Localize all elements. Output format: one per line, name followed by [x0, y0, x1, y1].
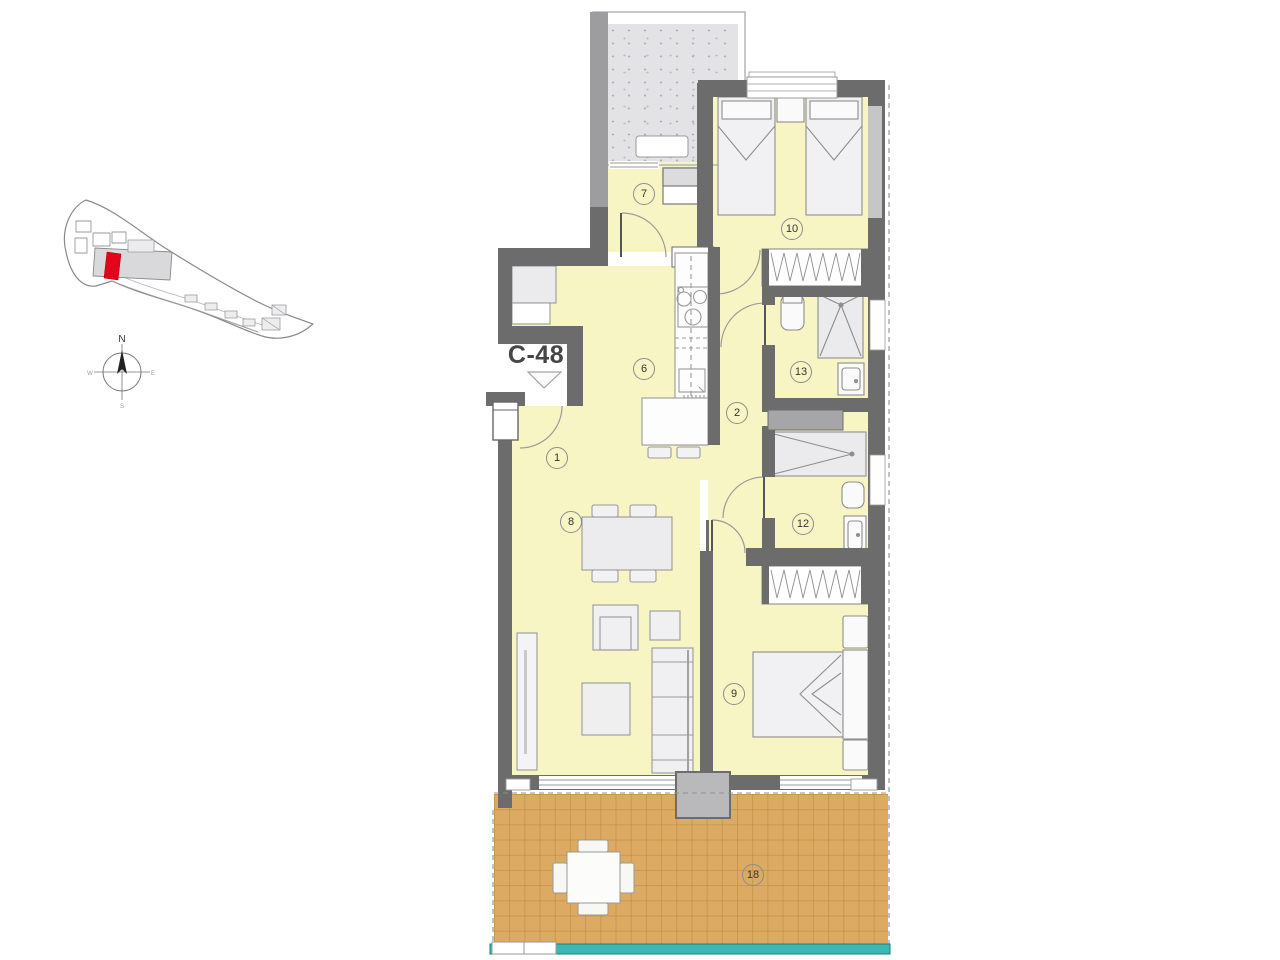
room-badge-laundry: 7 — [633, 183, 655, 205]
bedroom-10-window — [747, 77, 837, 98]
room-badge-bedroom-2: 10 — [781, 218, 803, 240]
room-badge-terrace: 18 — [742, 864, 764, 886]
toilet — [842, 482, 864, 508]
coffee-table — [582, 683, 630, 735]
compass-north-label: N — [118, 334, 125, 345]
room-badge-hallway: 2 — [726, 402, 748, 424]
room-badge-entrance: 1 — [546, 447, 568, 469]
patio-bench — [636, 136, 688, 157]
fridge — [512, 266, 556, 303]
dining-chair — [630, 570, 656, 582]
headboard — [843, 650, 868, 739]
compass-rose: N E S W — [87, 334, 155, 410]
room-badge-living: 8 — [560, 511, 582, 533]
dining-chair — [630, 505, 656, 517]
utility-box — [493, 402, 518, 440]
terrace-chair — [620, 863, 634, 893]
compass-east-label: E — [151, 371, 155, 377]
dining-chair — [592, 570, 618, 582]
terrace-pillar — [676, 772, 730, 818]
dining-chair — [592, 505, 618, 517]
floorplan-page: N E S W — [0, 0, 1280, 960]
nightstand — [843, 616, 868, 648]
site-map — [64, 200, 313, 338]
terrace-table — [567, 852, 620, 903]
unit-location-marker — [104, 252, 121, 280]
larder-unit — [512, 303, 550, 324]
stool — [677, 447, 700, 458]
terrace-chair — [578, 903, 608, 915]
room-badge-bathroom-2: 12 — [792, 513, 814, 535]
patio-side-wall — [590, 12, 608, 207]
bedroom-9-sliding-door — [780, 776, 862, 789]
double-bed — [753, 652, 843, 737]
terrace-chair — [578, 840, 608, 852]
unit-label: C-48 — [504, 341, 568, 370]
nightstand — [843, 740, 868, 770]
bedroom-10-side-window — [868, 106, 882, 218]
nightstand — [777, 97, 804, 122]
terrace-chair — [553, 863, 567, 893]
compass-south-label: S — [120, 404, 124, 410]
kitchen-peninsula — [642, 398, 708, 445]
dining-table — [582, 517, 672, 570]
entrance-arrow-icon — [528, 372, 561, 388]
floorplan-drawing: N E S W — [0, 0, 1280, 960]
side-table — [650, 611, 680, 640]
stool — [648, 447, 671, 458]
room-badge-bathroom-1: 13 — [790, 361, 812, 383]
room-badge-kitchen: 6 — [633, 358, 655, 380]
bathroom-12-window — [870, 455, 885, 505]
service-duct — [768, 410, 843, 430]
room-badge-bedroom-main: 9 — [723, 683, 745, 705]
living-sliding-door — [539, 776, 676, 789]
laundry-fixtures — [663, 168, 698, 204]
bathroom-13-window — [870, 300, 885, 350]
sofa — [652, 648, 693, 773]
compass-west-label: W — [87, 371, 93, 377]
